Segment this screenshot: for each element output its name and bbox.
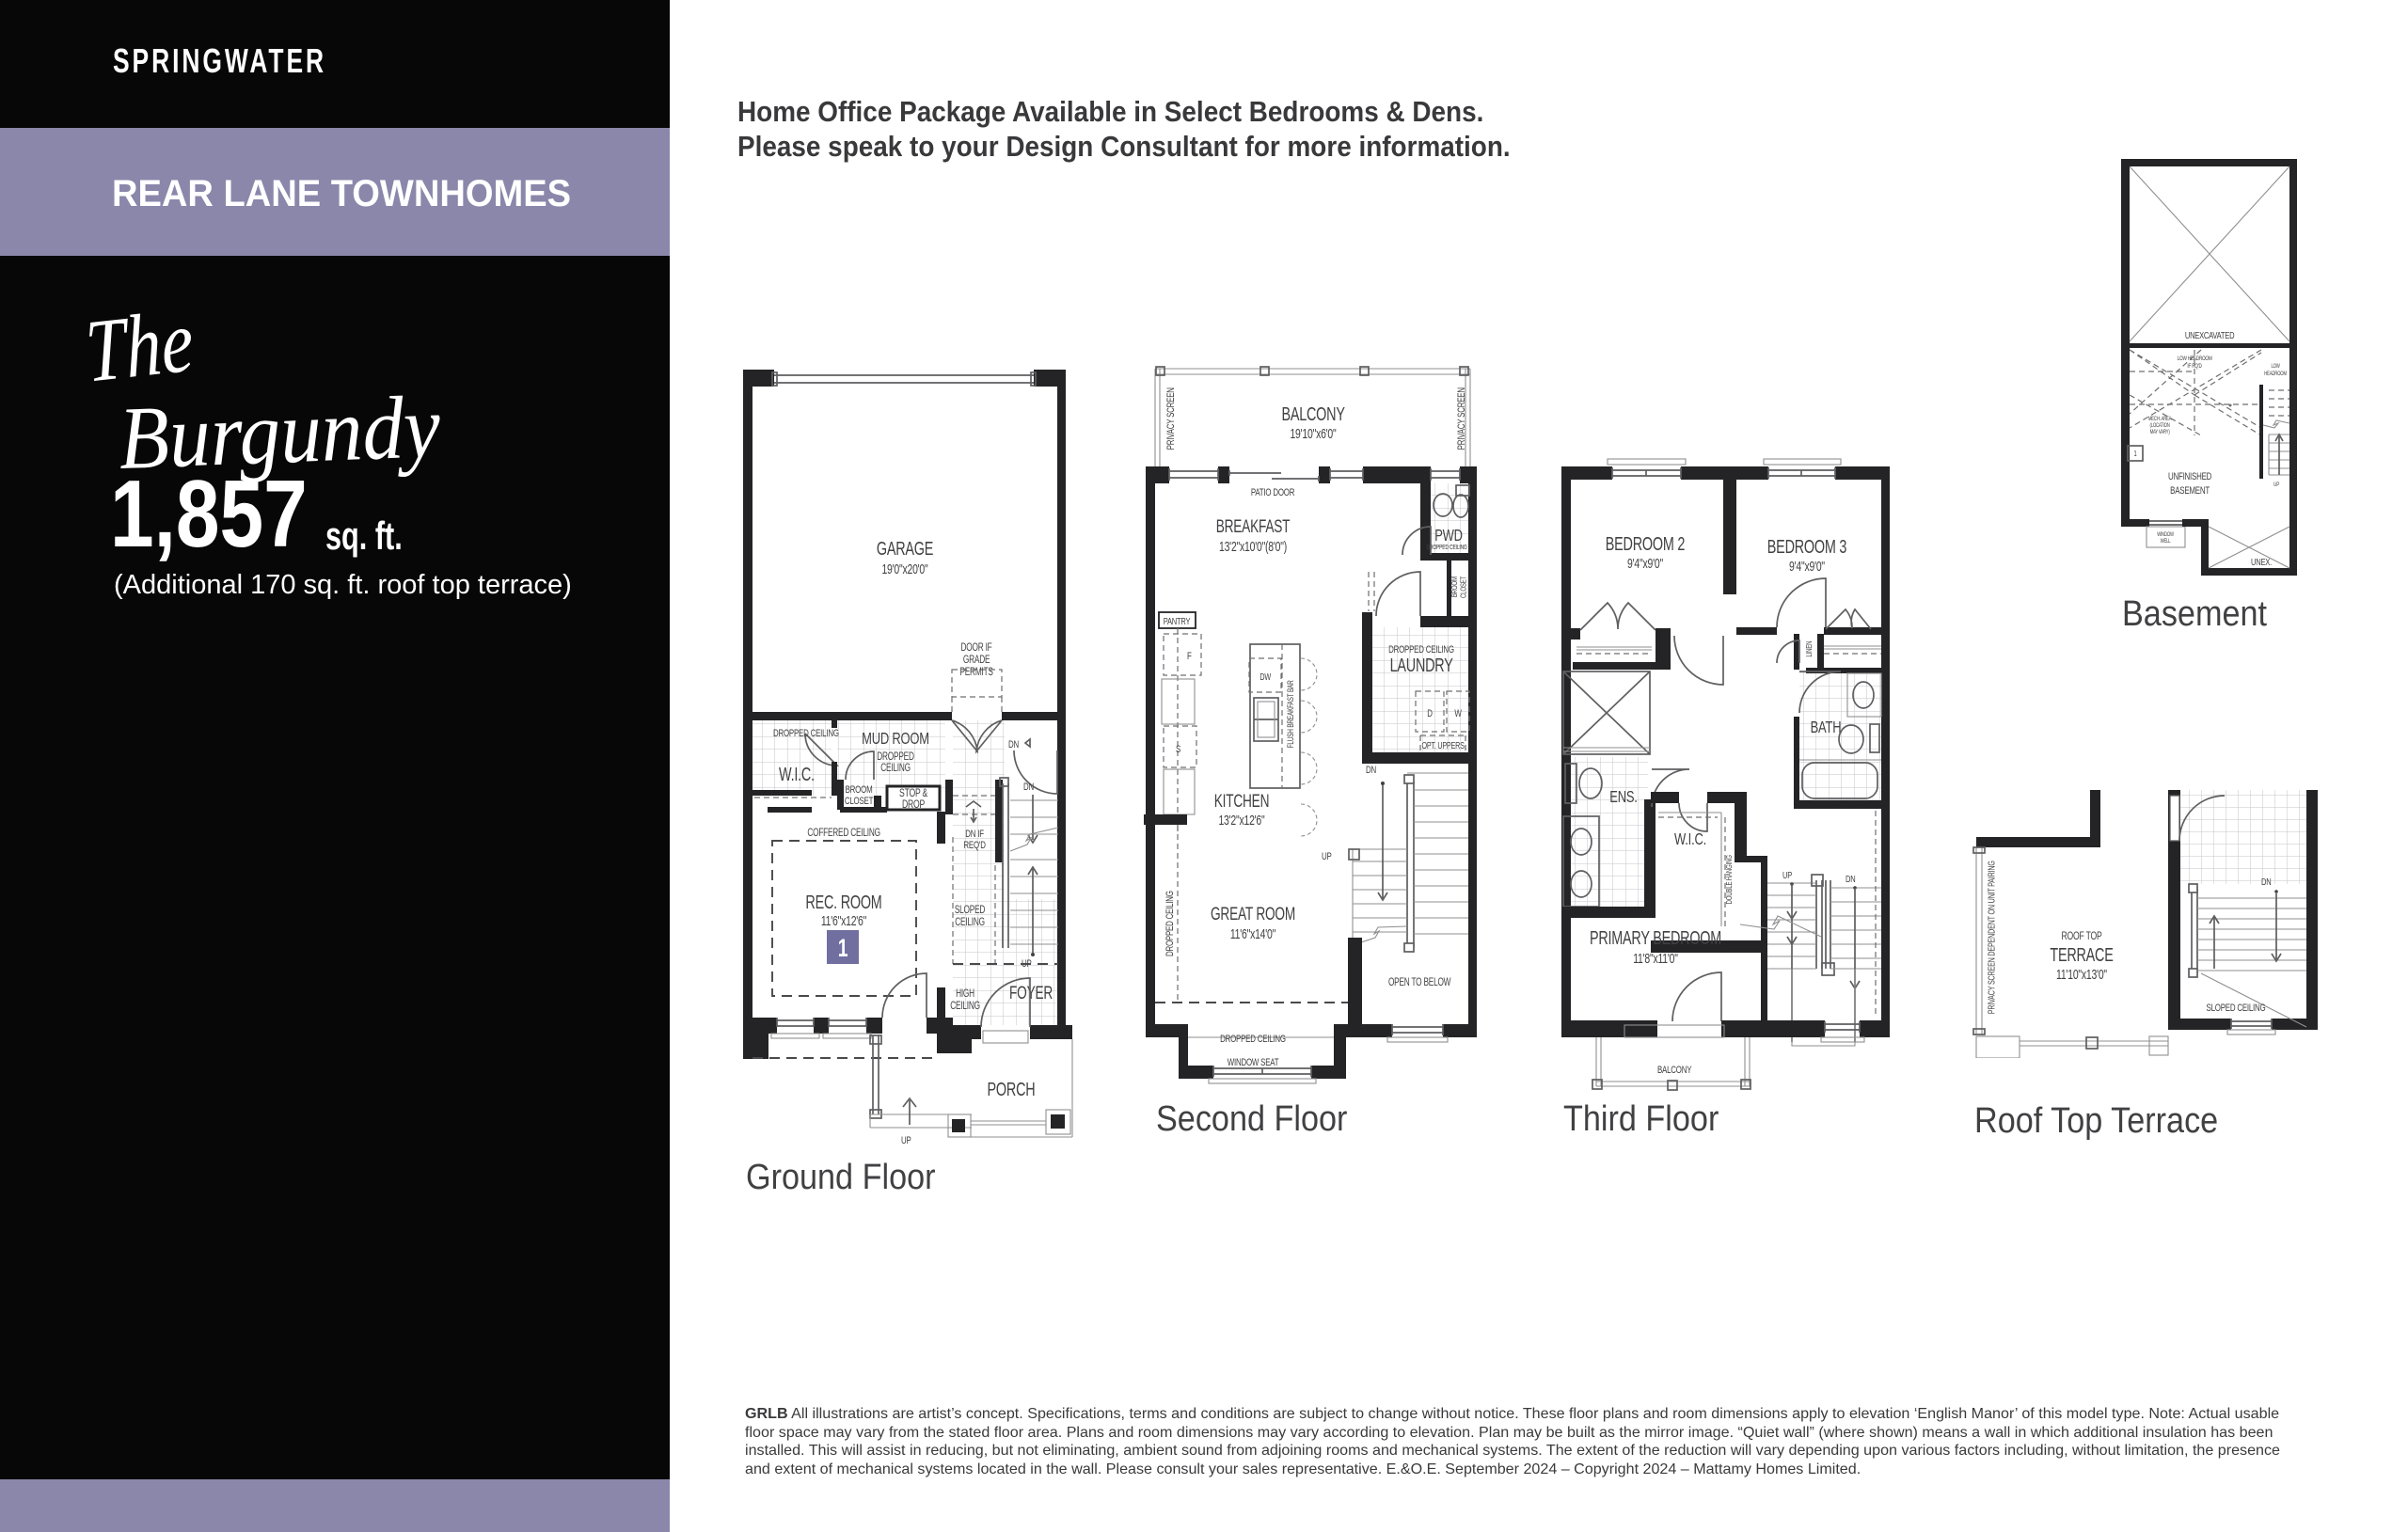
svg-text:1: 1 [838, 934, 848, 962]
svg-text:GRADE: GRADE [963, 655, 990, 667]
svg-text:13'2"x12'6": 13'2"x12'6" [1218, 813, 1264, 828]
svg-text:PRIMARY BEDROOM: PRIMARY BEDROOM [1590, 927, 1721, 949]
svg-text:REQ'D: REQ'D [963, 840, 986, 852]
svg-text:11'6"x14'0": 11'6"x14'0" [1230, 926, 1275, 941]
svg-text:BEDROOM 3: BEDROOM 3 [1767, 536, 1846, 558]
svg-text:FOYER: FOYER [1009, 983, 1053, 1003]
svg-text:DROPPED: DROPPED [877, 751, 913, 764]
svg-text:GARAGE: GARAGE [877, 538, 933, 560]
svg-text:UP: UP [1322, 851, 1332, 863]
svg-text:UNEX.: UNEX. [2251, 557, 2272, 567]
svg-text:F: F [1187, 651, 1192, 663]
svg-text:WINDOW: WINDOW [2157, 531, 2174, 538]
svg-text:DROPPED CEILING: DROPPED CEILING [1220, 1034, 1286, 1046]
svg-text:ENS.: ENS. [1609, 788, 1637, 807]
svg-text:DN: DN [1846, 874, 1855, 884]
svg-text:ROOF TOP: ROOF TOP [2062, 931, 2102, 943]
svg-text:DW: DW [1259, 671, 1271, 682]
svg-text:PORCH: PORCH [988, 1079, 1036, 1100]
svg-text:11'6"x12'6": 11'6"x12'6" [821, 913, 866, 928]
svg-text:DN: DN [1008, 739, 1019, 751]
svg-text:D: D [1427, 708, 1433, 720]
svg-text:BASEMENT: BASEMENT [2170, 485, 2210, 498]
svg-text:BREAKFAST: BREAKFAST [1216, 516, 1291, 537]
svg-text:9'4"x9'0": 9'4"x9'0" [1627, 556, 1663, 571]
svg-text:HIGH: HIGH [956, 988, 974, 1001]
svg-text:FLUSH BREAKFAST BAR: FLUSH BREAKFAST BAR [1286, 680, 1295, 748]
svg-text:BROOM: BROOM [846, 784, 873, 797]
svg-text:MAY VARY): MAY VARY) [2150, 429, 2170, 435]
svg-text:STOP &: STOP & [899, 788, 927, 800]
svg-text:HEADROOM: HEADROOM [2264, 371, 2287, 377]
svg-text:DOUBLE HANGING: DOUBLE HANGING [1724, 855, 1734, 905]
svg-text:DROPPED CEILING: DROPPED CEILING [1164, 891, 1177, 956]
svg-text:DN IF: DN IF [965, 829, 984, 841]
svg-text:BATH: BATH [1811, 719, 1842, 737]
svg-text:TERRACE: TERRACE [2050, 944, 2113, 966]
svg-text:MUD ROOM: MUD ROOM [862, 730, 929, 749]
svg-text:1: 1 [2134, 450, 2137, 458]
svg-text:SLOPED: SLOPED [955, 905, 985, 917]
svg-text:19'10"x6'0": 19'10"x6'0" [1290, 426, 1336, 441]
svg-text:DN: DN [1023, 782, 1034, 794]
svg-text:DOOR IF: DOOR IF [961, 642, 992, 655]
svg-text:(LOCATION: (LOCATION [2149, 422, 2170, 429]
svg-text:CEILING: CEILING [950, 1001, 980, 1013]
svg-text:13'2"x10'0"(8'0"): 13'2"x10'0"(8'0") [1219, 539, 1287, 554]
svg-text:SLOPED CEILING: SLOPED CEILING [2207, 1003, 2266, 1015]
svg-text:W: W [1454, 708, 1461, 720]
svg-text:11'8"x11'0": 11'8"x11'0" [1633, 951, 1678, 966]
svg-text:W.I.C.: W.I.C. [1674, 830, 1706, 849]
svg-text:LOW: LOW [2271, 363, 2279, 370]
svg-text:IF RQ'D: IF RQ'D [2187, 363, 2201, 370]
svg-text:UP: UP [1782, 870, 1792, 880]
svg-text:BEDROOM 2: BEDROOM 2 [1606, 533, 1685, 555]
svg-text:CEILING: CEILING [880, 763, 911, 775]
svg-text:PRIVACY SCREEN: PRIVACY SCREEN [1456, 387, 1468, 450]
svg-text:KITCHEN: KITCHEN [1214, 791, 1270, 812]
svg-text:WELL: WELL [2161, 538, 2171, 545]
svg-text:DN: DN [1366, 765, 1376, 777]
svg-text:DN: DN [2261, 877, 2271, 887]
svg-text:LAUNDRY: LAUNDRY [1390, 655, 1454, 676]
svg-text:OPT. UPPERS: OPT. UPPERS [1421, 740, 1465, 750]
svg-text:9'4"x9'0": 9'4"x9'0" [1789, 559, 1825, 574]
svg-text:LINEN: LINEN [1804, 641, 1814, 657]
svg-text:DROP: DROP [902, 799, 925, 812]
svg-text:UNEXCAVATED: UNEXCAVATED [2185, 330, 2235, 340]
svg-text:CLOSET: CLOSET [1458, 576, 1467, 598]
svg-text:REC. ROOM: REC. ROOM [805, 892, 881, 913]
svg-text:PANTRY: PANTRY [1164, 616, 1191, 626]
svg-text:COFFERED CEILING: COFFERED CEILING [807, 828, 880, 840]
svg-text:DROPPED CEILING: DROPPED CEILING [1427, 544, 1468, 551]
svg-text:CLOSET: CLOSET [845, 796, 874, 808]
svg-text:PWD: PWD [1434, 527, 1463, 545]
svg-text:BALCONY: BALCONY [1281, 403, 1345, 425]
svg-text:WINDOW SEAT: WINDOW SEAT [1228, 1057, 1279, 1069]
svg-text:PATIO DOOR: PATIO DOOR [1251, 487, 1295, 499]
svg-text:W.I.C.: W.I.C. [779, 764, 815, 785]
svg-text:PERMITS: PERMITS [959, 667, 993, 679]
svg-text:CEILING: CEILING [955, 917, 985, 929]
svg-text:LOW HEADROOM: LOW HEADROOM [2178, 355, 2212, 362]
svg-text:MECH. AREA: MECH. AREA [2148, 416, 2172, 422]
svg-text:S: S [1176, 744, 1180, 756]
svg-text:OPEN TO BELOW: OPEN TO BELOW [1388, 977, 1451, 989]
svg-text:11'10"x13'0": 11'10"x13'0" [2056, 967, 2107, 982]
svg-text:UP: UP [2273, 482, 2279, 488]
svg-text:PRIVACY SCREEN DEPENDENT ON UN: PRIVACY SCREEN DEPENDENT ON UNIT PAIRING [1987, 861, 1997, 1014]
svg-text:PRIVACY SCREEN: PRIVACY SCREEN [1165, 387, 1178, 450]
svg-text:19'0"x20'0": 19'0"x20'0" [881, 561, 927, 576]
svg-text:UP: UP [901, 1135, 911, 1147]
svg-text:GREAT ROOM: GREAT ROOM [1211, 904, 1295, 924]
svg-text:BALCONY: BALCONY [1657, 1065, 1692, 1077]
svg-text:UNFINISHED: UNFINISHED [2168, 471, 2211, 483]
